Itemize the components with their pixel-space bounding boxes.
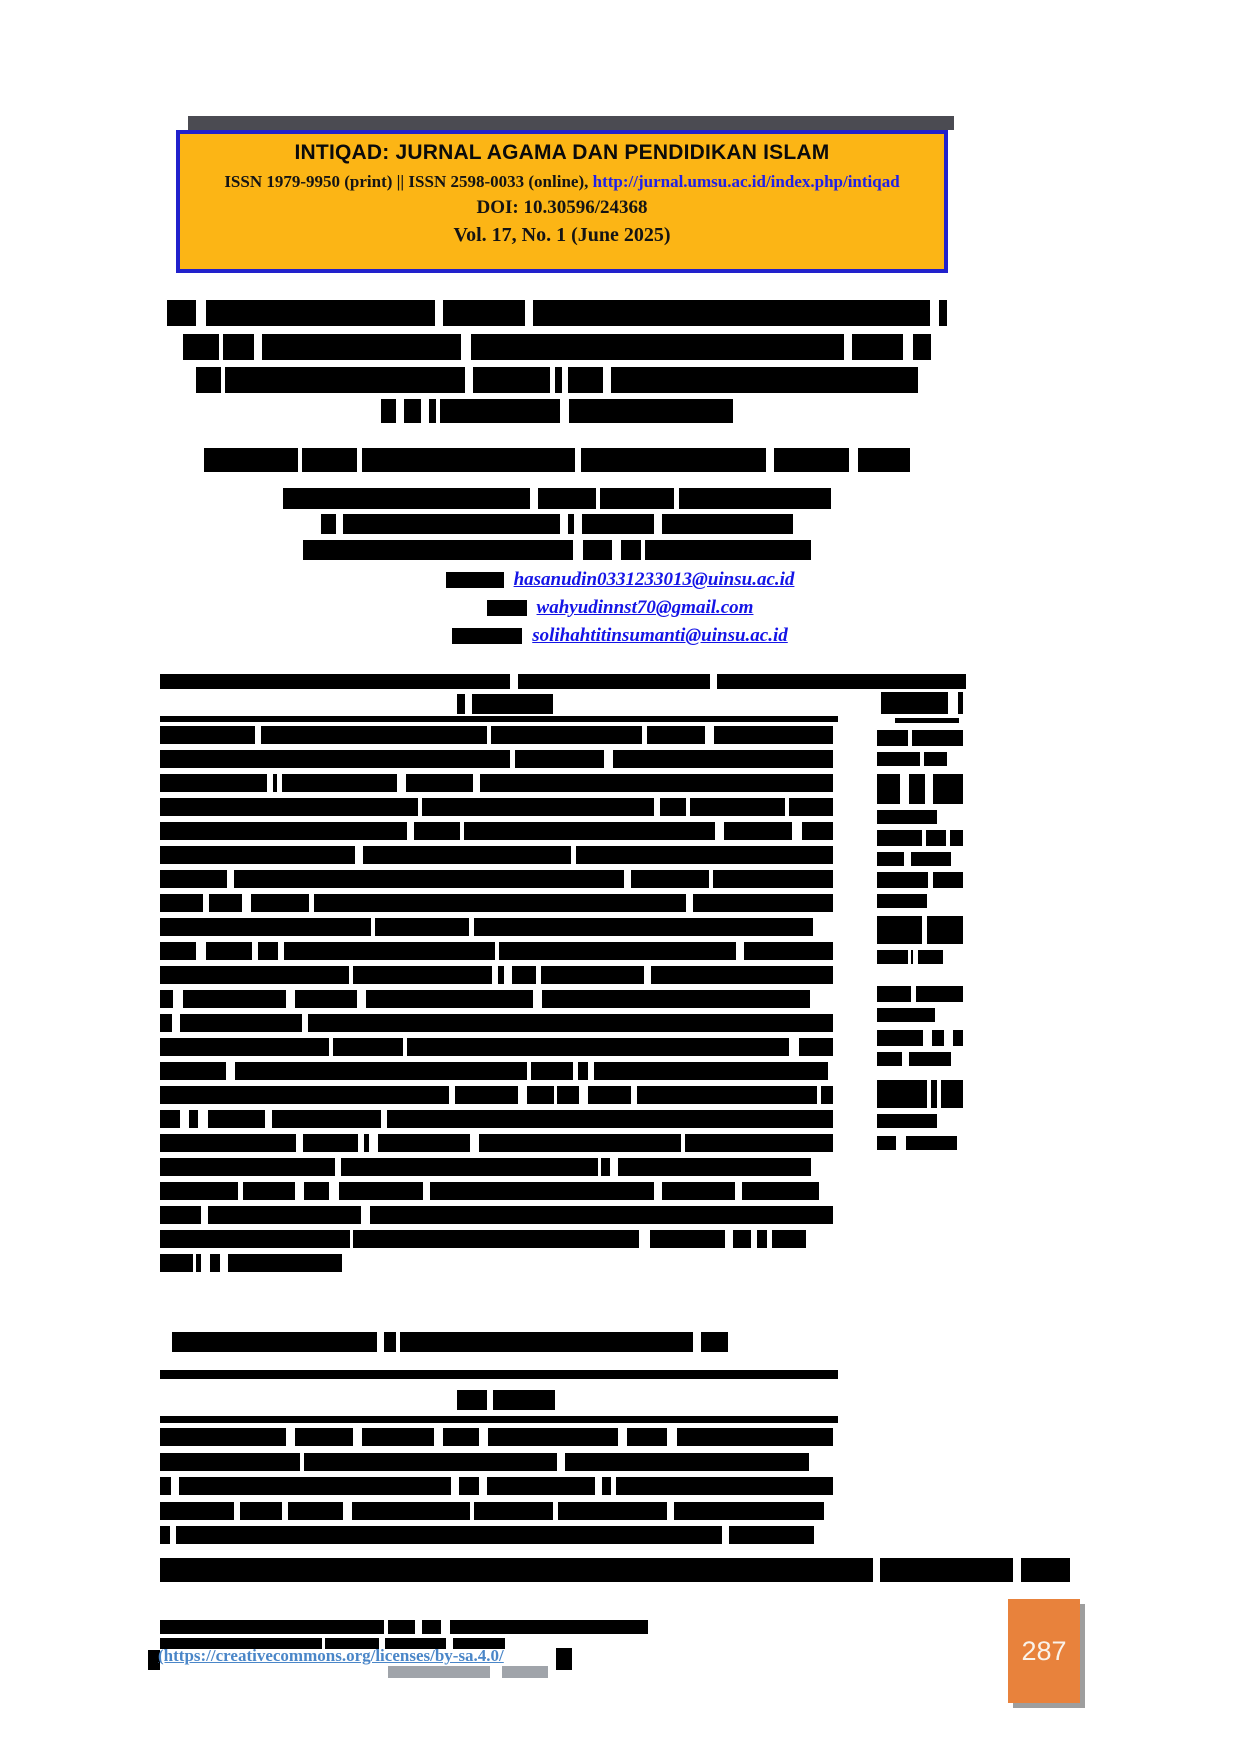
redaction-gap [221,1254,225,1272]
redaction-gap [603,367,610,393]
redaction-gap [335,1158,340,1176]
redaction-gap [946,830,950,846]
redaction-gap [904,852,911,866]
redaction-gap [667,1428,677,1446]
redaction-gap [198,1110,208,1128]
doi-line: DOI: 10.30596/24368 [180,197,944,219]
redaction-gap [441,1620,450,1634]
redaction-gap [817,1086,821,1104]
redaction-gap [604,750,613,768]
redaction-gap [449,1086,455,1104]
redaction-gap [219,334,223,360]
redacted-abstract-text [160,1206,833,1224]
redaction-gap [654,514,662,534]
redacted-abstract-text [160,1110,833,1128]
redacted-info-line [877,852,951,866]
redaction-gap [920,752,924,766]
redaction-gap [948,692,958,714]
redaction-gap [470,1502,475,1520]
redacted-title-line [196,367,918,393]
redaction-gap [789,1038,799,1056]
redaction-gap [286,1428,295,1446]
table-top-rule [160,674,966,689]
redaction-gap [295,1182,304,1200]
redaction-gap [234,1502,240,1520]
redaction-gap [423,1182,429,1200]
redaction-gap [201,1254,210,1272]
redaction-gap [557,1453,566,1471]
redaction-gap [171,1477,179,1495]
redaction-gap [533,990,542,1008]
redaction-gap [487,726,490,744]
redaction-gap [560,399,568,423]
redaction-gap [641,540,645,560]
redacted-abstract-text [160,1230,806,1248]
redaction-gap [465,694,472,714]
redaction-gap [900,774,908,804]
redaction-gap [681,1134,685,1152]
redacted-affiliation-line [303,540,811,560]
redaction-gap [469,918,475,936]
redaction-gap [282,1502,288,1520]
redaction-gap [624,870,631,888]
license-text-remnant [388,1666,490,1678]
redaction-gap [435,300,443,326]
redaction-gap [504,966,512,984]
redaction-gap [654,1182,661,1200]
redaction-gap [908,730,912,746]
redaction-gap [896,1136,905,1150]
redaction-gap [709,870,714,888]
redaction-gap [357,448,362,472]
redaction-gap [286,990,295,1008]
redacted-abstract-text [160,918,813,936]
redaction-gap [667,1502,674,1520]
redaction-gap [329,1038,334,1056]
redaction-gap [336,514,343,534]
redaction-gap [298,448,302,472]
redaction-gap [371,918,374,936]
email-link[interactable]: wahyudinnst70@gmail.com [537,597,754,619]
redaction-gap [172,1014,179,1032]
redacted-info-line [877,752,947,766]
redaction-gap [573,1062,577,1080]
redaction-gap [369,1134,378,1152]
redaction-gap [844,334,852,360]
redaction-gap [265,1110,272,1128]
redaction-gap [415,1620,422,1634]
redacted-abstract-text [160,870,833,888]
redaction-gap [927,1080,931,1108]
email-row: hasanudin0331233013@uinsu.ac.id [0,566,1240,594]
redaction-gap [686,798,690,816]
redaction-gap [510,674,519,689]
redaction-gap [267,774,273,792]
redaction-gap [309,894,313,912]
redaction-gap [357,990,367,1008]
redacted-abstrak-text [160,1502,824,1520]
redaction-gap [353,1428,362,1446]
redacted-info-line [877,1030,963,1046]
redacted-abstract-text [160,1254,342,1272]
redaction-gap [644,966,651,984]
redaction-gap [460,822,464,840]
redaction-gap [766,448,774,472]
redaction-gap [944,1030,953,1046]
journal-header-box: INTIQAD: JURNAL AGAMA DAN PENDIDIKAN ISL… [176,130,948,273]
redaction-gap [196,942,206,960]
redaction-gap [530,488,538,509]
email-row: solihahtitinsumanti@uinsu.ac.id [0,622,1240,650]
redacted-abstract-text [160,1086,833,1104]
redaction-gap [596,488,600,509]
license-link[interactable]: (https://creativecommons.org/licenses/by… [158,1646,504,1666]
redaction-gap [349,966,352,984]
redacted-info-line [895,718,959,723]
redaction-gap [381,1110,387,1128]
redaction-gap [277,774,282,792]
redacted-citation-line [160,1558,1070,1582]
redaction-gap [536,966,541,984]
redaction-gap [227,870,233,888]
redaction-gap [396,1332,400,1352]
redaction-gap [525,300,533,326]
redaction-gap [579,1086,587,1104]
volume-line: Vol. 17, No. 1 (June 2025) [180,224,944,247]
redacted-abstract-text [160,822,833,840]
redacted-fragment [556,1648,572,1670]
redaction-gap [922,916,926,944]
redaction-gap [654,798,659,816]
redaction-gap [403,1038,407,1056]
redacted-authors-line [204,448,910,472]
redaction-gap [465,367,472,393]
redacted-info-line [877,916,963,944]
redaction-gap [618,1428,626,1446]
redacted-abstrak-text [160,1453,809,1471]
redaction-gap [451,1477,458,1495]
redaction-gap [407,822,414,840]
redaction-gap [470,1134,479,1152]
redacted-abstract-text [160,990,810,1008]
redaction-gap [203,894,209,912]
redaction-gap [925,774,933,804]
redaction-gap [361,1206,370,1224]
email-link[interactable]: solihahtitinsumanti@uinsu.ac.id [532,625,788,647]
redacted-abstract-text [160,846,833,864]
issn-line: ISSN 1979-9950 (print) || ISSN 2598-0033… [180,172,944,192]
redacted-abstract-text [160,1182,819,1200]
redaction-gap [254,334,262,360]
redaction-gap [479,1477,487,1495]
redacted-info-line [877,730,963,746]
redacted-info-line [877,872,963,888]
redacted-abstract-text [160,750,833,768]
redaction-gap [611,1477,616,1495]
redaction-gap [434,1428,443,1446]
redaction-gap [908,950,912,964]
redaction-gap [595,1477,601,1495]
redaction-gap [421,399,429,423]
redaction-gap [686,894,693,912]
redaction-gap [252,942,258,960]
redaction-gap [492,966,498,984]
redacted-license-text [160,1620,648,1634]
redaction-gap [226,1062,235,1080]
redaction-gap [1013,1558,1021,1582]
redaction-gap [329,1182,339,1200]
redaction-gap [612,540,620,560]
redacted-abstrak-text [160,1526,814,1544]
redaction-gap [715,822,723,840]
redaction-gap [238,1182,243,1200]
issn-text: ISSN 1979-9950 (print) || ISSN 2598-0033… [224,172,592,191]
redaction-gap [358,1134,363,1152]
abstrak-header-rule [160,1416,838,1423]
redaction-gap [170,1526,176,1544]
redaction-gap [930,300,940,326]
redacted-abstract-text [160,1038,833,1056]
redacted-title-line [381,399,733,423]
redaction-gap [693,1332,701,1352]
redaction-gap [705,726,714,744]
redaction-gap [518,1086,528,1104]
redacted-info-line [877,894,927,908]
redaction-gap [710,674,717,689]
redaction-gap [573,540,583,560]
redaction-gap [922,830,926,846]
redaction-gap [913,950,918,964]
redaction-gap [674,488,679,509]
redacted-email-label [487,600,527,616]
redaction-gap [436,399,440,423]
redaction-gap [510,750,515,768]
redaction-gap [937,1080,941,1108]
redaction-gap [302,1014,308,1032]
redaction-gap [377,1332,384,1352]
redacted-info-line [877,986,963,1002]
redaction-gap [902,1052,909,1066]
redaction-gap [575,448,581,472]
redaction-gap [554,1086,557,1104]
email-link[interactable]: hasanudin0331233013@uinsu.ac.id [514,569,795,591]
redacted-abstract-text [160,774,833,792]
redacted-abstract-text [160,726,833,744]
redaction-gap [903,334,912,360]
redaction-gap [928,872,933,888]
redaction-gap [527,1062,531,1080]
journal-page: INTIQAD: JURNAL AGAMA DAN PENDIDIKAN ISL… [0,0,1240,1754]
redacted-info-line [877,1080,963,1108]
redacted-abstract-text [160,1134,833,1152]
redaction-gap [196,300,206,326]
redaction-gap [767,1230,773,1248]
redaction-gap [610,1158,618,1176]
redaction-gap [193,1254,197,1272]
redaction-gap [461,334,471,360]
redaction-gap [355,846,363,864]
redacted-abstrak-text [160,1477,833,1495]
journal-url-link[interactable]: http://jurnal.umsu.ac.id/index.php/intiq… [593,172,900,191]
redacted-abstract-text [160,894,833,912]
header-shadow-bar [188,116,954,130]
redaction-gap [725,1230,734,1248]
redaction-gap [631,1086,637,1104]
redaction-gap [300,1453,304,1471]
author-emails: hasanudin0331233013@uinsu.ac.idwahyudinn… [0,566,1240,650]
redacted-abstract-text [160,1158,811,1176]
redacted-keywords-line [172,1332,728,1352]
redaction-gap [473,774,480,792]
redaction-gap [180,1110,189,1128]
redacted-abstract-text [160,966,833,984]
redaction-gap [343,1502,351,1520]
redacted-info-line [877,830,963,846]
redaction-gap [397,774,406,792]
redaction-gap [588,1062,594,1080]
redaction-gap [201,1206,208,1224]
page-number-box: 287 [1008,1599,1080,1703]
redaction-gap [550,367,554,393]
redaction-gap [396,399,404,423]
redacted-affiliation-line [283,488,831,509]
redaction-gap [639,1230,646,1248]
redacted-abstrak-heading [457,1390,555,1410]
redaction-gap [574,514,582,534]
redaction-gap [736,942,744,960]
redacted-title-line [167,300,947,326]
redacted-affiliation-line [321,514,793,534]
redacted-info-line [881,692,963,714]
redaction-gap [722,1526,729,1544]
redaction-gap [642,726,647,744]
redacted-info-line [877,1114,937,1128]
license-text-remnant [502,1666,548,1678]
redacted-abstract-text [160,798,833,816]
abstrak-top-rule [160,1370,838,1379]
redaction-gap [278,942,284,960]
redaction-gap [479,1428,488,1446]
redaction-gap [221,367,225,393]
redacted-title-line [183,334,931,360]
redaction-gap [792,822,802,840]
redacted-abstract-heading [457,694,553,714]
redacted-info-line [877,1052,951,1066]
email-row: wahyudinnst70@gmail.com [0,594,1240,622]
redaction-gap [560,514,568,534]
redaction-gap [487,1390,492,1410]
redaction-gap [751,1230,757,1248]
redaction-gap [571,846,576,864]
page-number: 287 [1021,1636,1066,1667]
redaction-gap [350,1230,353,1248]
redacted-info-line [877,1136,957,1150]
redaction-gap [553,1502,558,1520]
abstract-header-rule [160,716,838,722]
redaction-gap [562,367,568,393]
redacted-email-label [446,572,504,588]
redaction-gap [911,986,916,1002]
redaction-gap [242,894,251,912]
redacted-info-line [877,774,963,804]
redaction-gap [384,1620,388,1634]
redaction-gap [255,726,261,744]
redacted-abstract-text [160,1014,833,1032]
redacted-info-line [877,810,937,824]
redaction-gap [495,942,499,960]
redacted-email-label [452,628,522,644]
redaction-gap [923,1030,932,1046]
redaction-gap [173,990,183,1008]
redaction-gap [785,798,789,816]
journal-title: INTIQAD: JURNAL AGAMA DAN PENDIDIKAN ISL… [180,141,944,165]
redacted-abstract-text [160,1062,828,1080]
redaction-gap [849,448,858,472]
redaction-gap [598,1158,601,1176]
redaction-gap [873,1558,880,1582]
redaction-gap [299,1134,304,1152]
redacted-info-line [877,1008,935,1022]
redacted-abstract-text [160,942,833,960]
redacted-abstrak-text [160,1428,833,1446]
redaction-gap [418,798,422,816]
redaction-gap [735,1182,742,1200]
redacted-info-line [877,950,943,964]
